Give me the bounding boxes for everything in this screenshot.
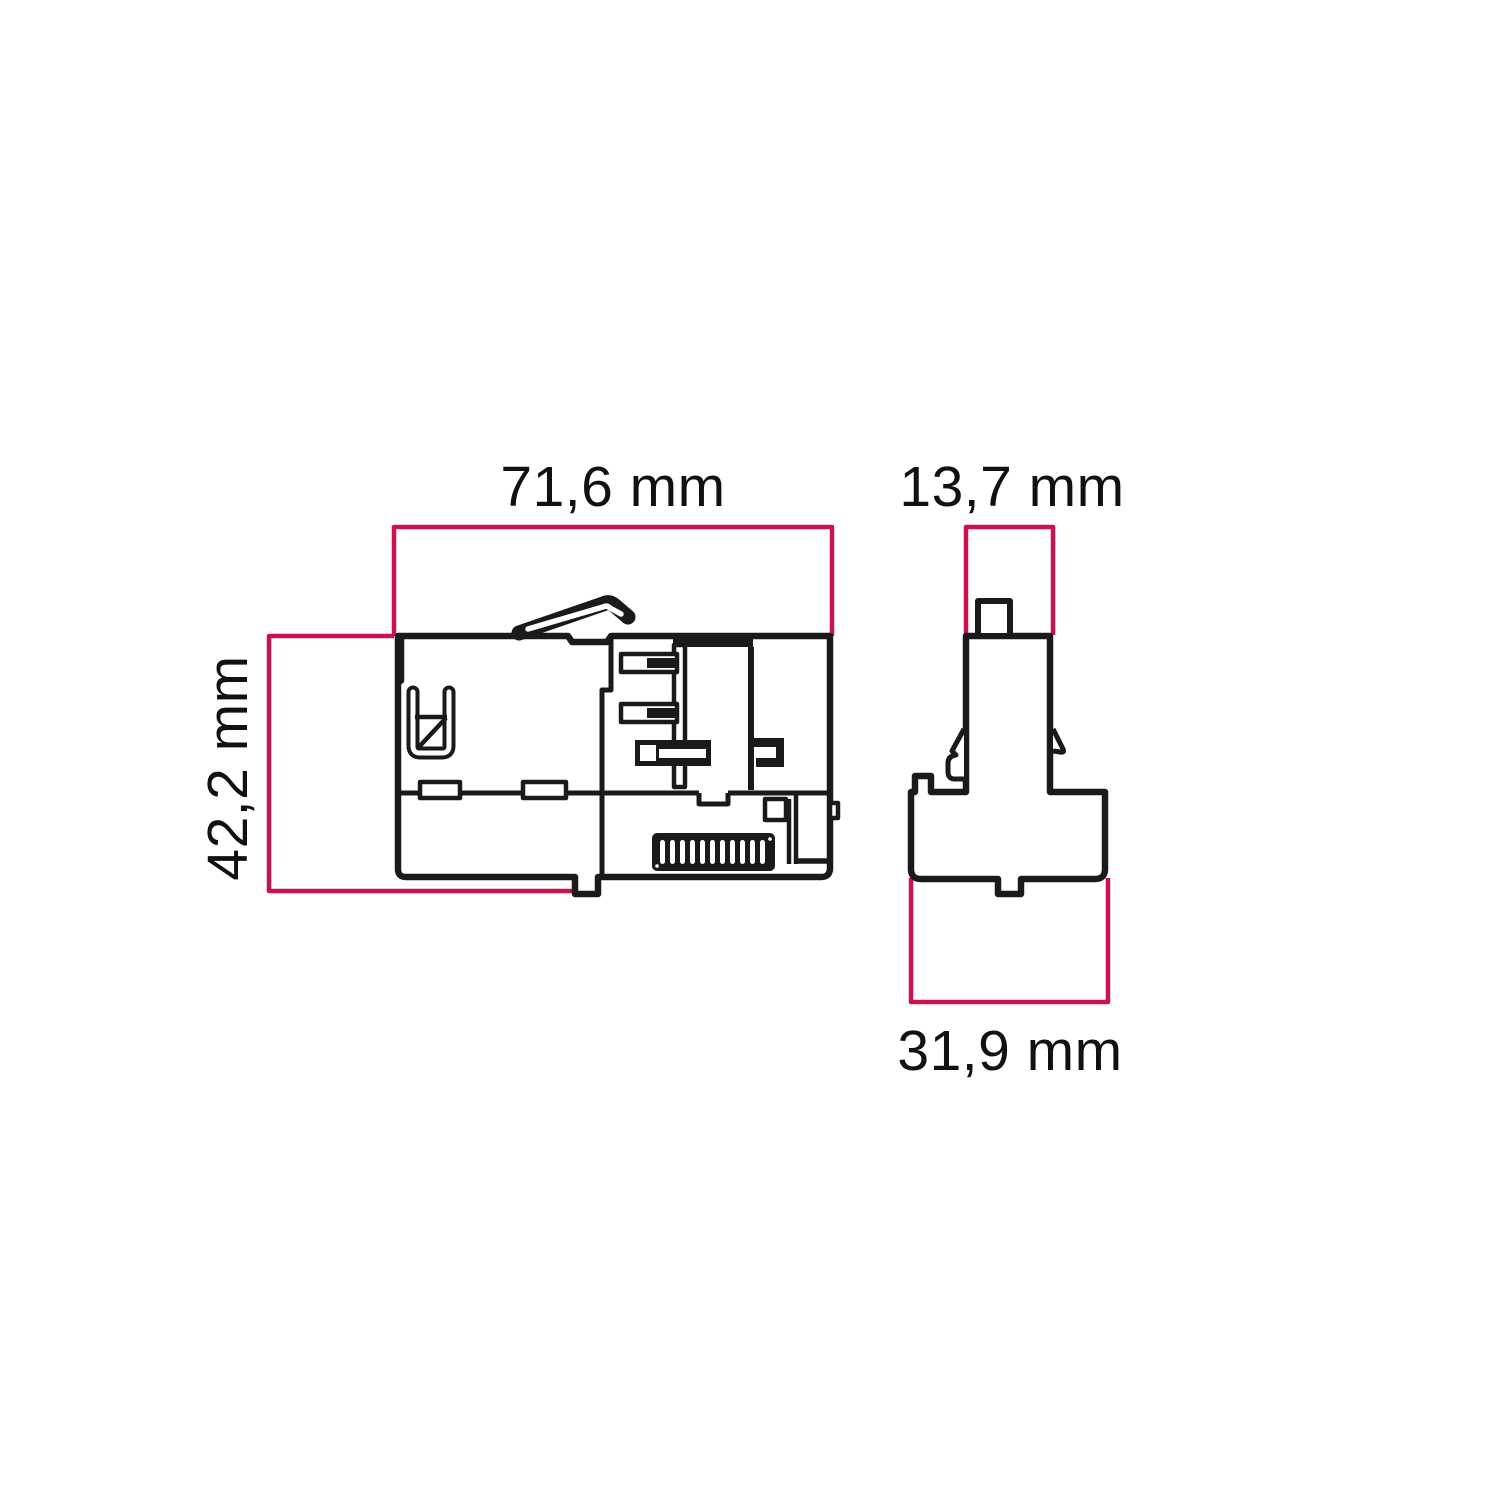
page: 71,6 mm 42,2 mm 13,7 mm 31,9 mm [0, 0, 1500, 1500]
dimension-line-side-width [394, 527, 832, 636]
top-bump [978, 601, 1010, 636]
ribbed-terminal [652, 833, 775, 871]
front-view-drawing [911, 601, 1105, 894]
contact-prong-2-pin [647, 708, 677, 718]
left-clip [948, 729, 964, 779]
side-view-drawing [398, 603, 838, 894]
right-clip [1053, 729, 1064, 752]
front-body-outline [911, 636, 1105, 894]
contact-arm-square [640, 745, 656, 761]
tower-bottom-notch [699, 793, 728, 804]
side-width-label: 71,6 mm [500, 454, 725, 520]
connector-slot [765, 799, 786, 820]
terminal-ribs [655, 837, 772, 868]
contact-prong-1-pin [647, 658, 677, 668]
divider-block-1 [420, 782, 460, 798]
right-edge-bump [830, 803, 838, 818]
divider-block-2 [523, 782, 566, 798]
front-top-width-label: 13,7 mm [899, 454, 1124, 520]
contact-arm-slot [659, 749, 706, 758]
front-bottom-width-label: 31,9 mm [897, 1018, 1122, 1084]
side-height-label: 42,2 mm [195, 655, 261, 880]
